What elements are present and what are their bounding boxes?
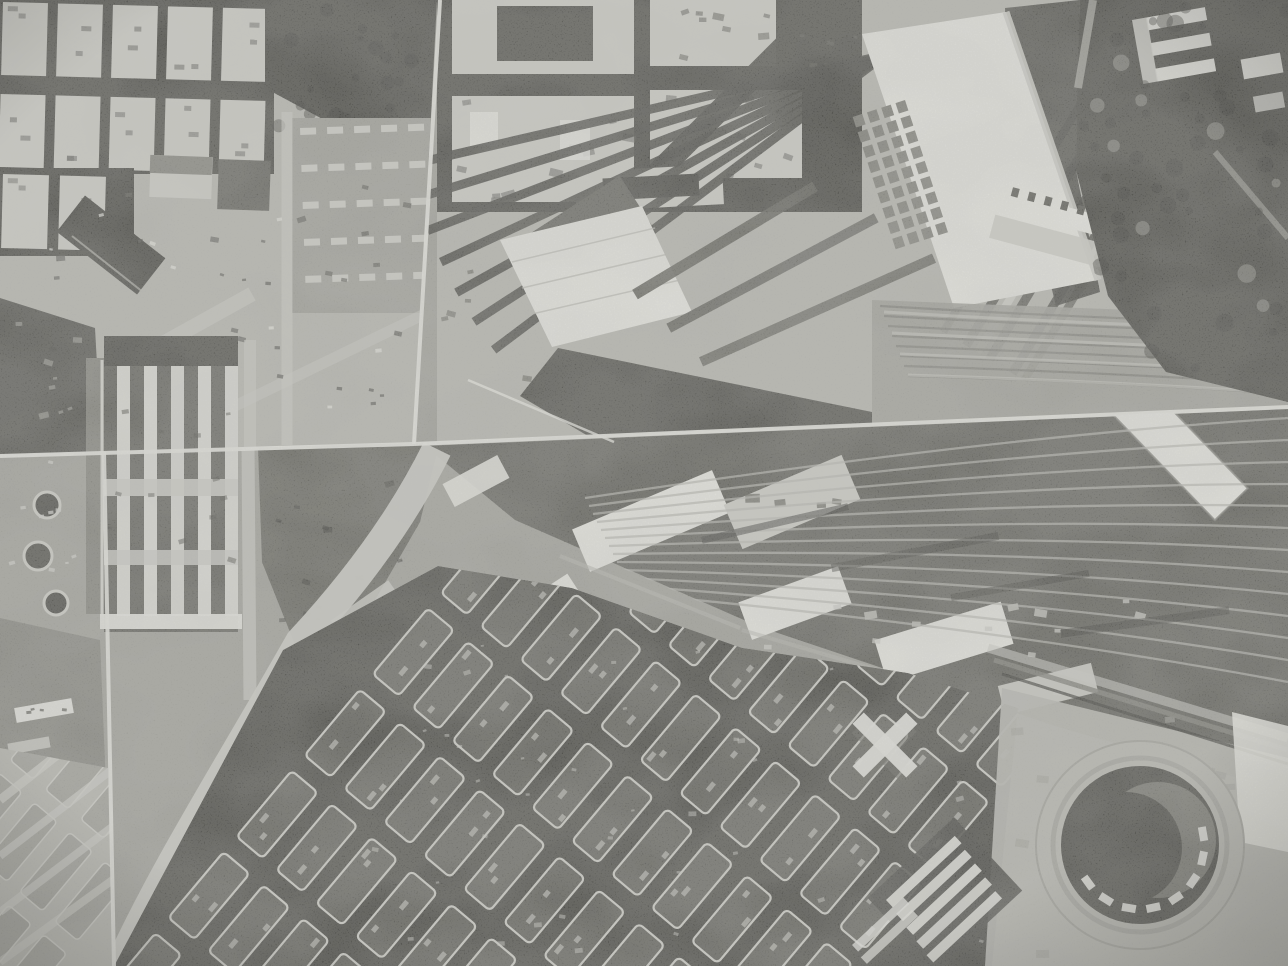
vignette-overlay: [0, 0, 1288, 966]
aerial-photo: [0, 0, 1288, 966]
aerial-photo-page: [0, 0, 1288, 966]
